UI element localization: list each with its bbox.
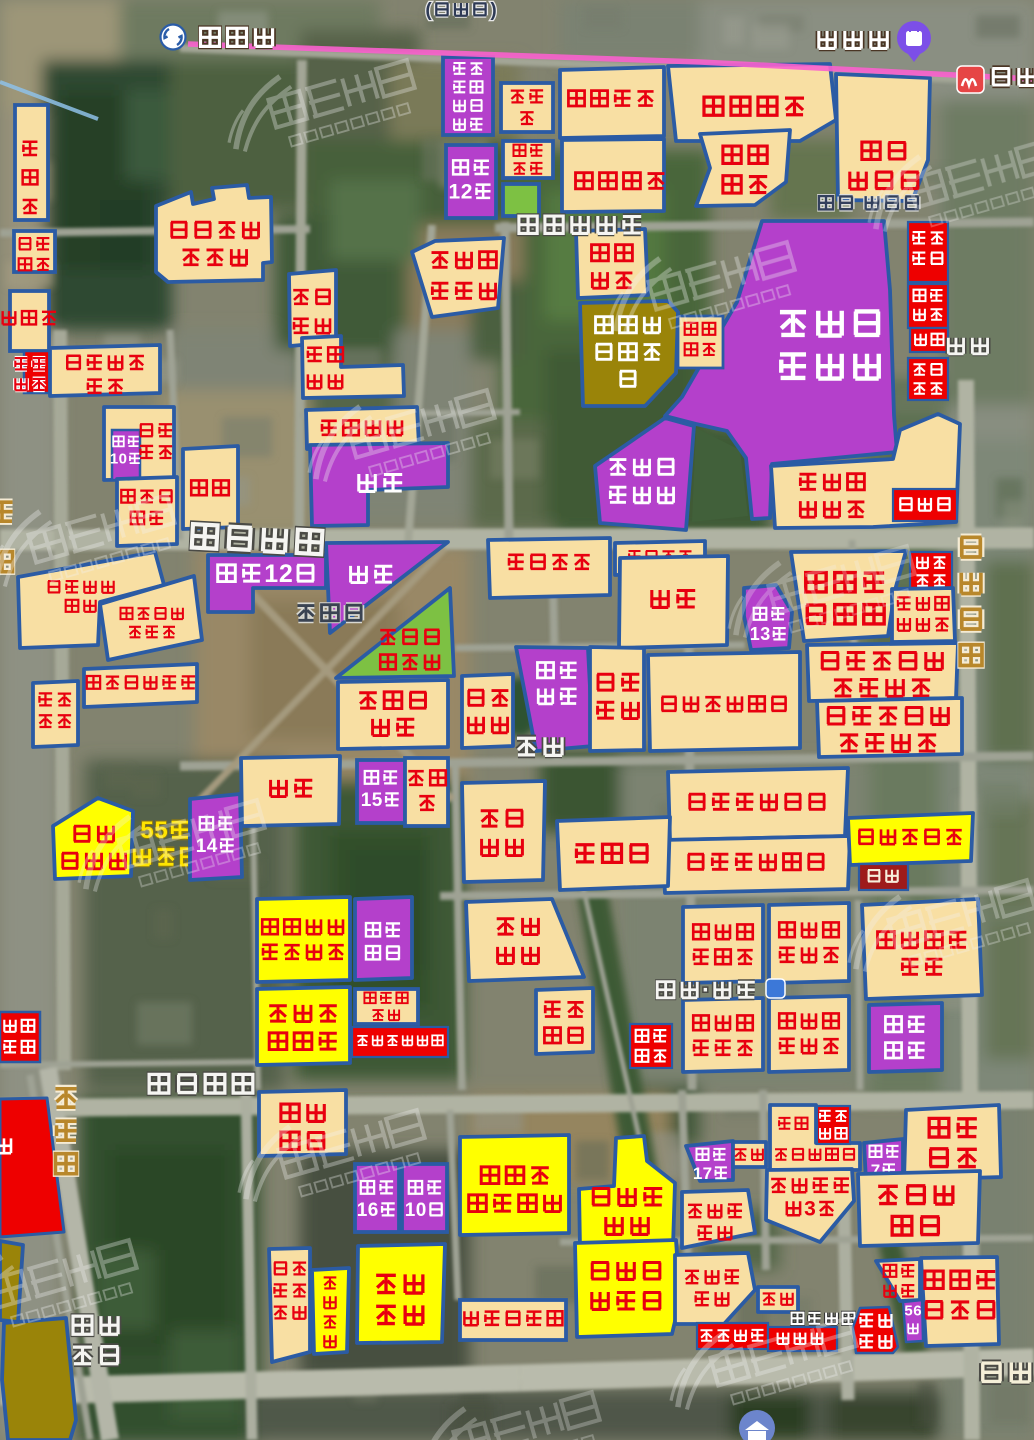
- svg-text:·: ·: [702, 977, 710, 1004]
- svg-text:1: 1: [264, 560, 278, 588]
- svg-text:): ): [490, 0, 496, 21]
- svg-text:2: 2: [279, 560, 293, 588]
- svg-text:1: 1: [361, 790, 372, 811]
- svg-text:1: 1: [110, 451, 118, 468]
- svg-text:1: 1: [357, 1200, 368, 1221]
- svg-text:3: 3: [804, 1198, 816, 1221]
- svg-text:2: 2: [461, 181, 473, 204]
- svg-text:5: 5: [372, 790, 383, 811]
- svg-text:7: 7: [703, 1164, 712, 1183]
- svg-text:1: 1: [449, 181, 461, 204]
- svg-text:(: (: [425, 0, 432, 21]
- svg-text:0: 0: [119, 451, 127, 468]
- svg-text:6: 6: [368, 1200, 379, 1221]
- svg-text:1: 1: [750, 624, 760, 644]
- svg-text:5: 5: [904, 1303, 912, 1320]
- svg-text:1: 1: [405, 1200, 416, 1221]
- svg-text:0: 0: [416, 1200, 427, 1221]
- svg-text:6: 6: [913, 1303, 921, 1320]
- svg-text:3: 3: [760, 624, 770, 644]
- svg-text:1: 1: [693, 1164, 702, 1183]
